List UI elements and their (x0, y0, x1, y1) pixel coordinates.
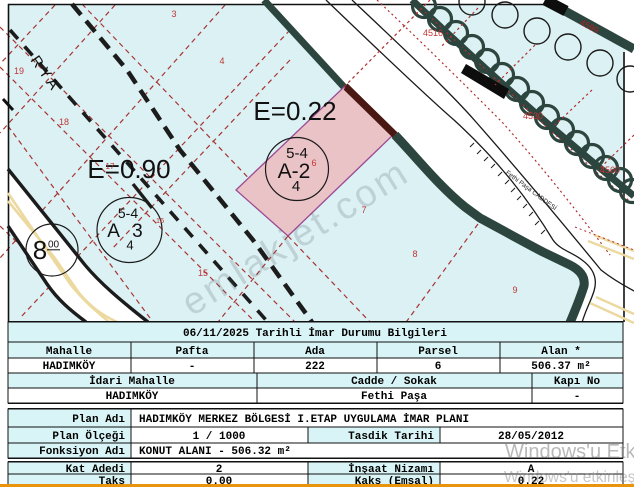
svg-text:-: - (189, 361, 196, 373)
svg-text:9: 9 (512, 285, 517, 295)
svg-text:Plan Adı: Plan Adı (72, 414, 125, 426)
svg-text:506.37 m²: 506.37 m² (531, 361, 590, 373)
svg-text:4: 4 (292, 178, 300, 195)
svg-text:-: - (574, 391, 581, 403)
svg-text:4530: 4530 (523, 111, 543, 121)
svg-text:Windows'u Etkinleştir: Windows'u Etkinleştir (505, 441, 634, 463)
svg-text:Fonksiyon Adı: Fonksiyon Adı (39, 446, 125, 458)
svg-text:HADIMKÖY MERKEZ BÖLGESİ I.ETAP: HADIMKÖY MERKEZ BÖLGESİ I.ETAP UYGULAMA … (139, 413, 469, 426)
svg-text:HADIMKÖY: HADIMKÖY (43, 360, 96, 373)
svg-text:17: 17 (106, 162, 115, 171)
svg-text:E=0.90: E=0.90 (87, 154, 170, 184)
svg-text:4516: 4516 (423, 28, 443, 38)
svg-text:E=0.22: E=0.22 (253, 96, 336, 126)
svg-text:Kapı No: Kapı No (554, 376, 601, 388)
svg-text:5-4: 5-4 (118, 205, 138, 221)
svg-text:8: 8 (33, 235, 47, 265)
svg-text:Pafta: Pafta (175, 346, 208, 358)
svg-text:8: 8 (412, 249, 417, 259)
svg-text:Alan *: Alan * (541, 346, 581, 358)
svg-text:KONUT ALANI - 506.32 m²: KONUT ALANI - 506.32 m² (139, 446, 291, 458)
svg-text:6: 6 (435, 361, 442, 373)
svg-text:Plan Ölçeği: Plan Ölçeği (52, 430, 125, 443)
svg-text:Tasdik Tarihi: Tasdik Tarihi (348, 431, 434, 443)
svg-text:4: 4 (126, 238, 133, 253)
svg-text:Windows'u etkinleştirmek için: Windows'u etkinleştirmek için (504, 469, 634, 486)
svg-text:6: 6 (311, 158, 316, 168)
svg-text:Mahalle: Mahalle (46, 346, 93, 358)
svg-text:Ada: Ada (305, 346, 325, 358)
svg-text:18: 18 (59, 117, 69, 127)
svg-text:1 / 1000: 1 / 1000 (193, 431, 246, 443)
svg-text:4560: 4560 (600, 165, 620, 175)
svg-text:HADIMKÖY: HADIMKÖY (106, 390, 159, 403)
svg-text:Cadde / Sokak: Cadde / Sokak (351, 376, 437, 388)
svg-text:Fethi Paşa: Fethi Paşa (361, 391, 427, 403)
svg-text:3: 3 (171, 9, 176, 19)
svg-text:06/11/2025 Tarihli İmar Durumu: 06/11/2025 Tarihli İmar Durumu Bilgileri (183, 327, 447, 340)
svg-text:19: 19 (14, 66, 24, 76)
svg-text:4: 4 (219, 56, 224, 66)
svg-text:00: 00 (48, 240, 60, 251)
svg-text:İdari Mahalle: İdari Mahalle (89, 375, 175, 388)
svg-text:222: 222 (305, 361, 325, 373)
svg-text:Parsel: Parsel (418, 346, 458, 358)
svg-text:16: 16 (156, 216, 164, 225)
